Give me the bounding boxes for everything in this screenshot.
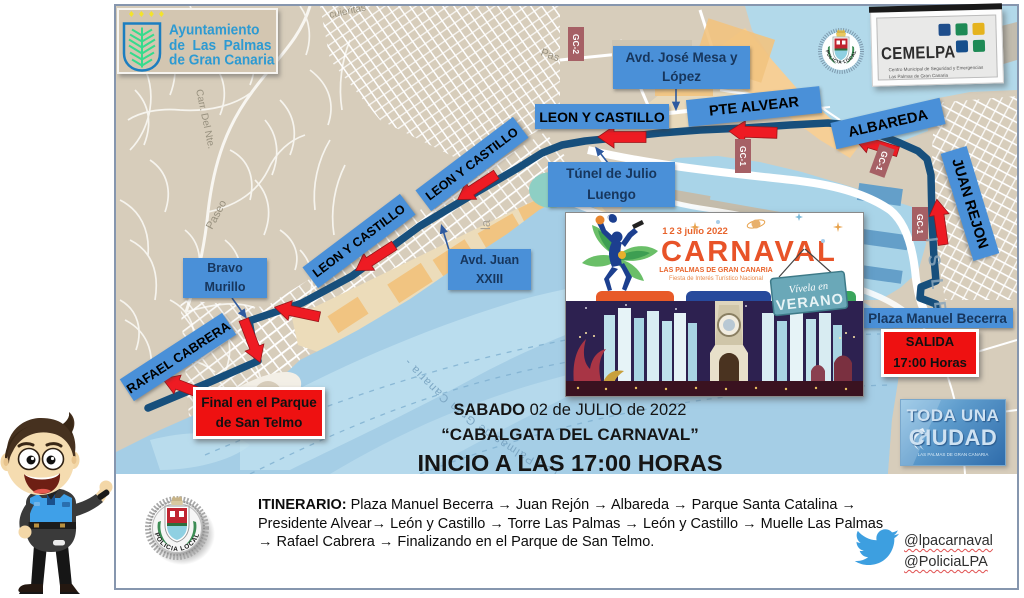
svg-text:GC-2: GC-2 <box>571 34 581 55</box>
svg-text:LAS PALMAS DE GRAN CANARIA: LAS PALMAS DE GRAN CANARIA <box>659 267 772 274</box>
svg-text:GC-1: GC-1 <box>915 214 925 235</box>
svg-text:CARNAVAL: CARNAVAL <box>661 236 837 268</box>
svg-text:la: la <box>478 219 493 230</box>
svg-text:Fiesta de Interés Turístico Na: Fiesta de Interés Turístico Nacional <box>669 276 763 282</box>
svg-text:GC-1: GC-1 <box>738 146 748 167</box>
